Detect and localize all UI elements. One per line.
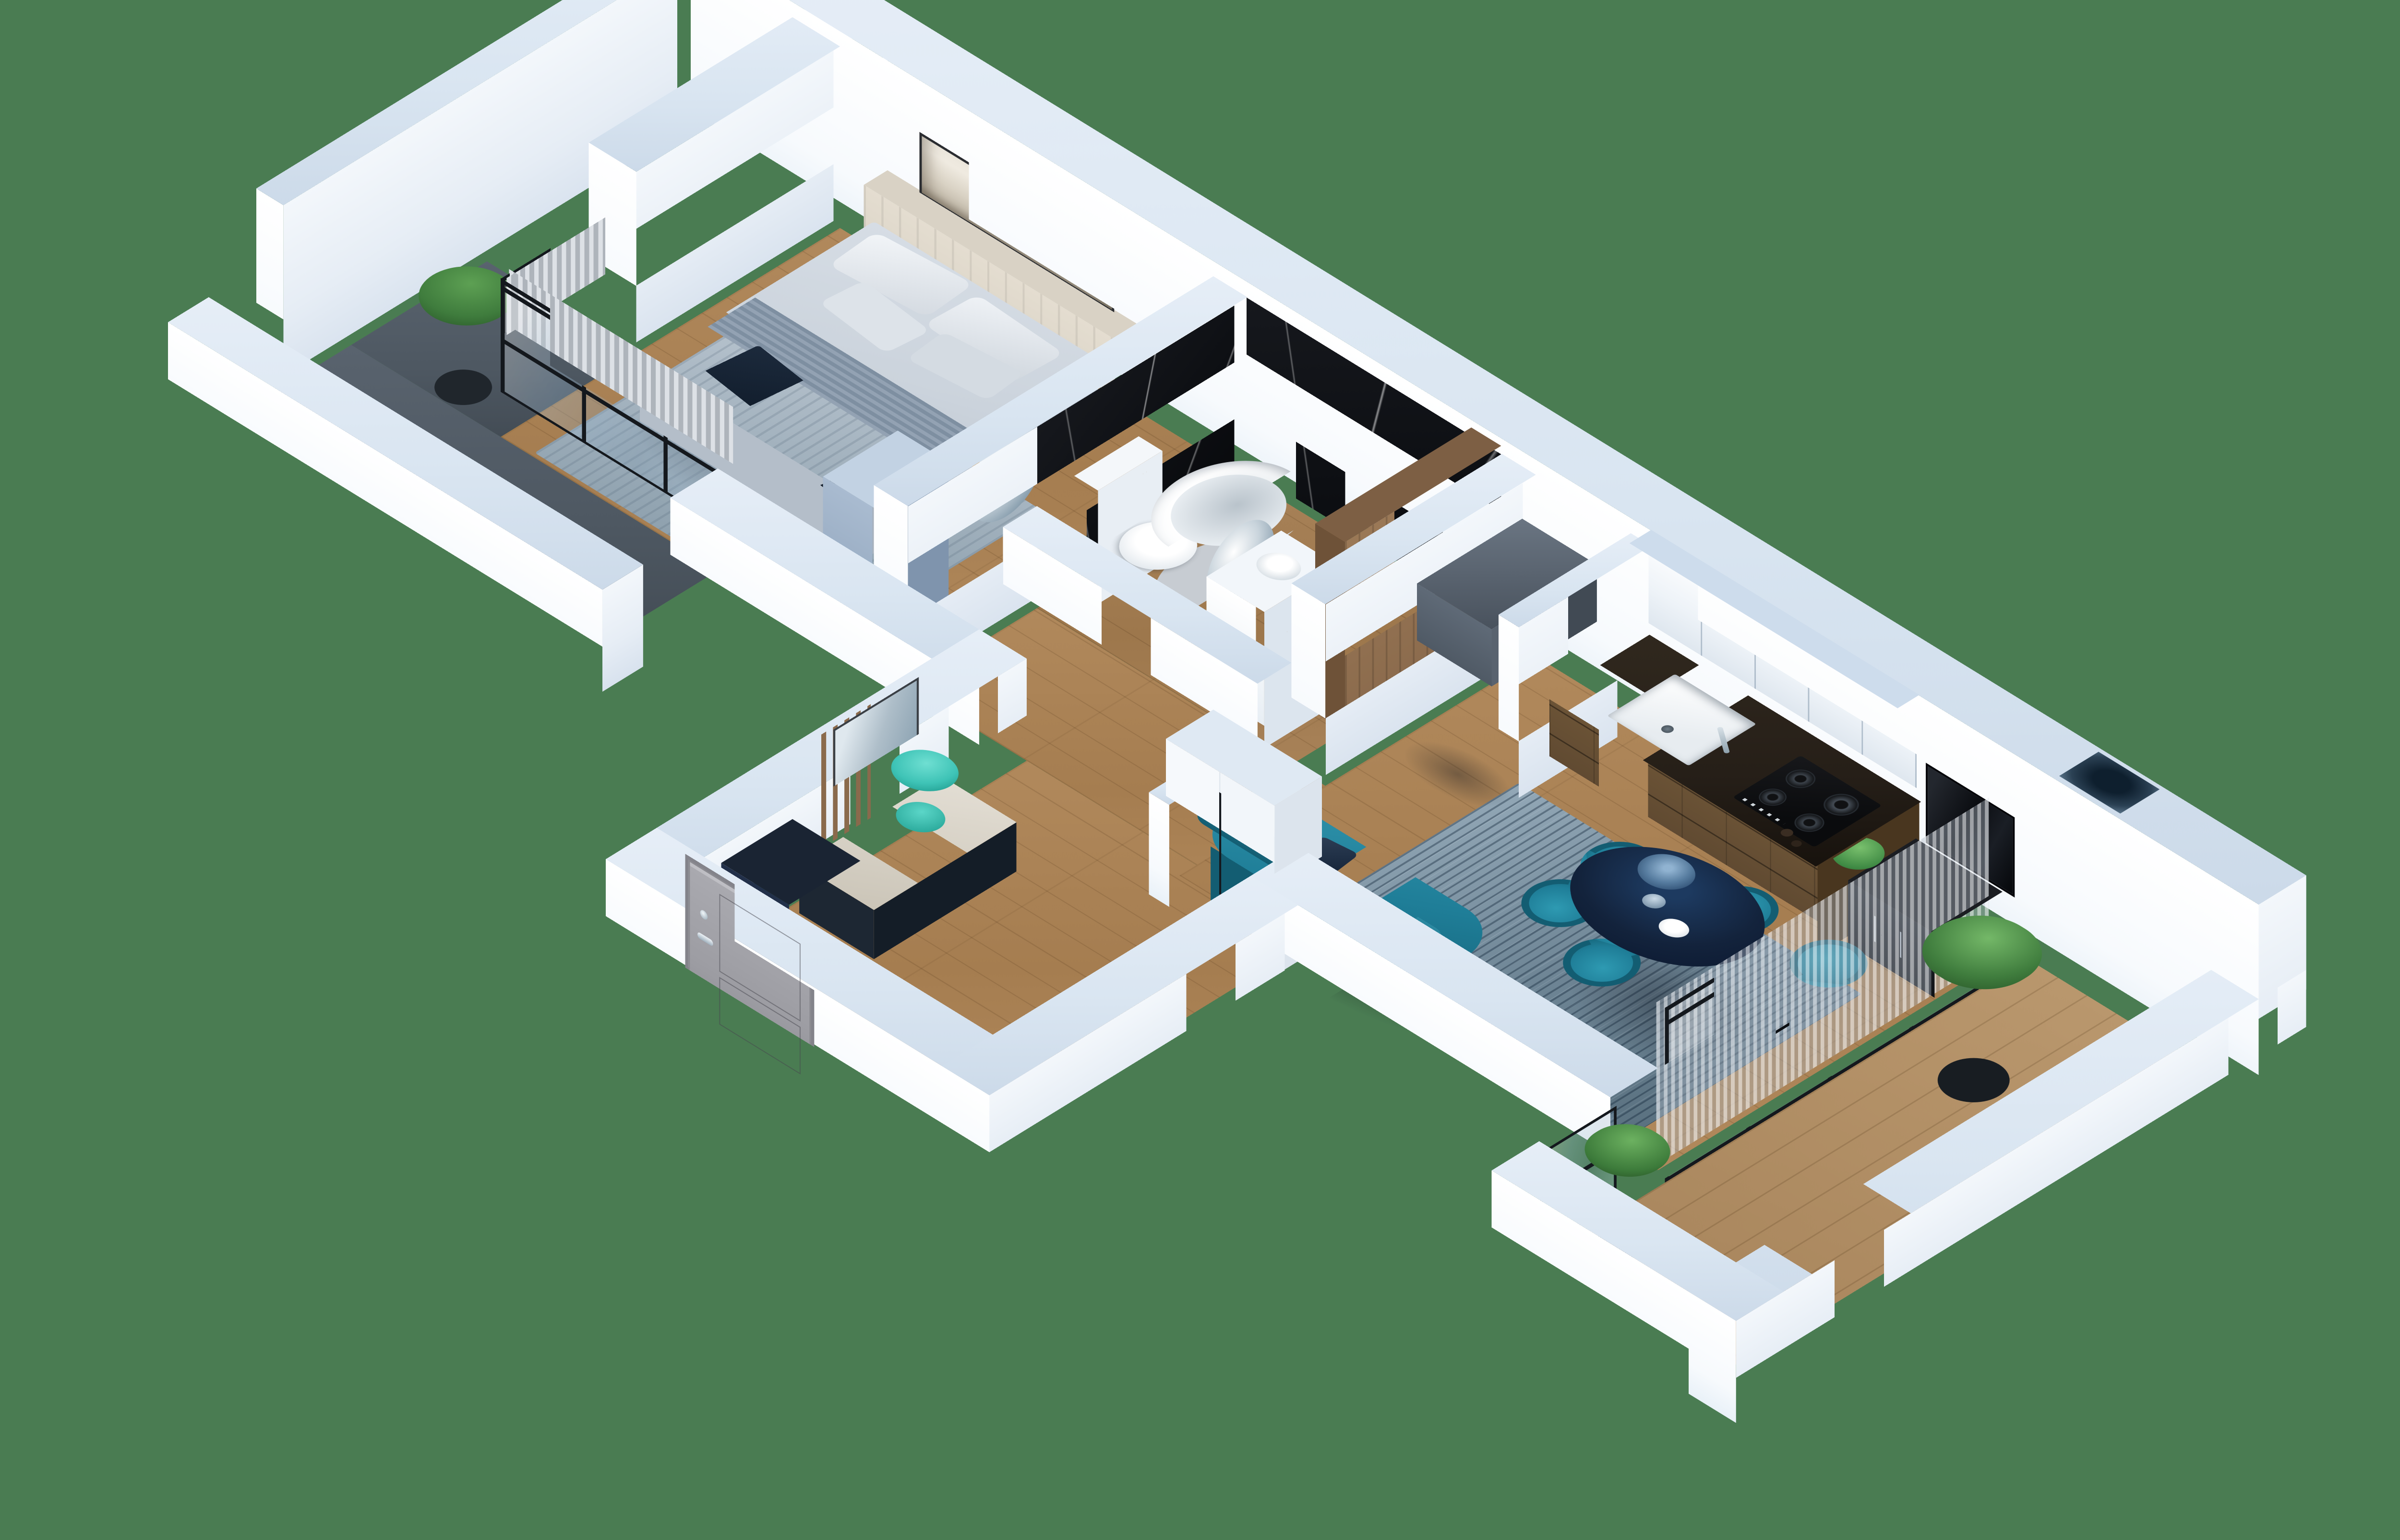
bath-kitchen-wall-endface [1291,584,1325,786]
hob-burner [1779,765,1823,792]
hob-burner [1815,789,1867,821]
hob-burner [1753,785,1792,809]
sink-drain [1659,724,1677,735]
wardrobe-handle [1219,792,1221,895]
entry-door-handle[interactable] [697,931,713,947]
floorplan-scene [0,0,2400,1440]
hob-burner [1788,809,1831,836]
partition-door-handle[interactable] [1776,1022,1789,1034]
kitchen-stub-wall-front [1499,615,1519,809]
entry-door-lock [700,908,708,921]
